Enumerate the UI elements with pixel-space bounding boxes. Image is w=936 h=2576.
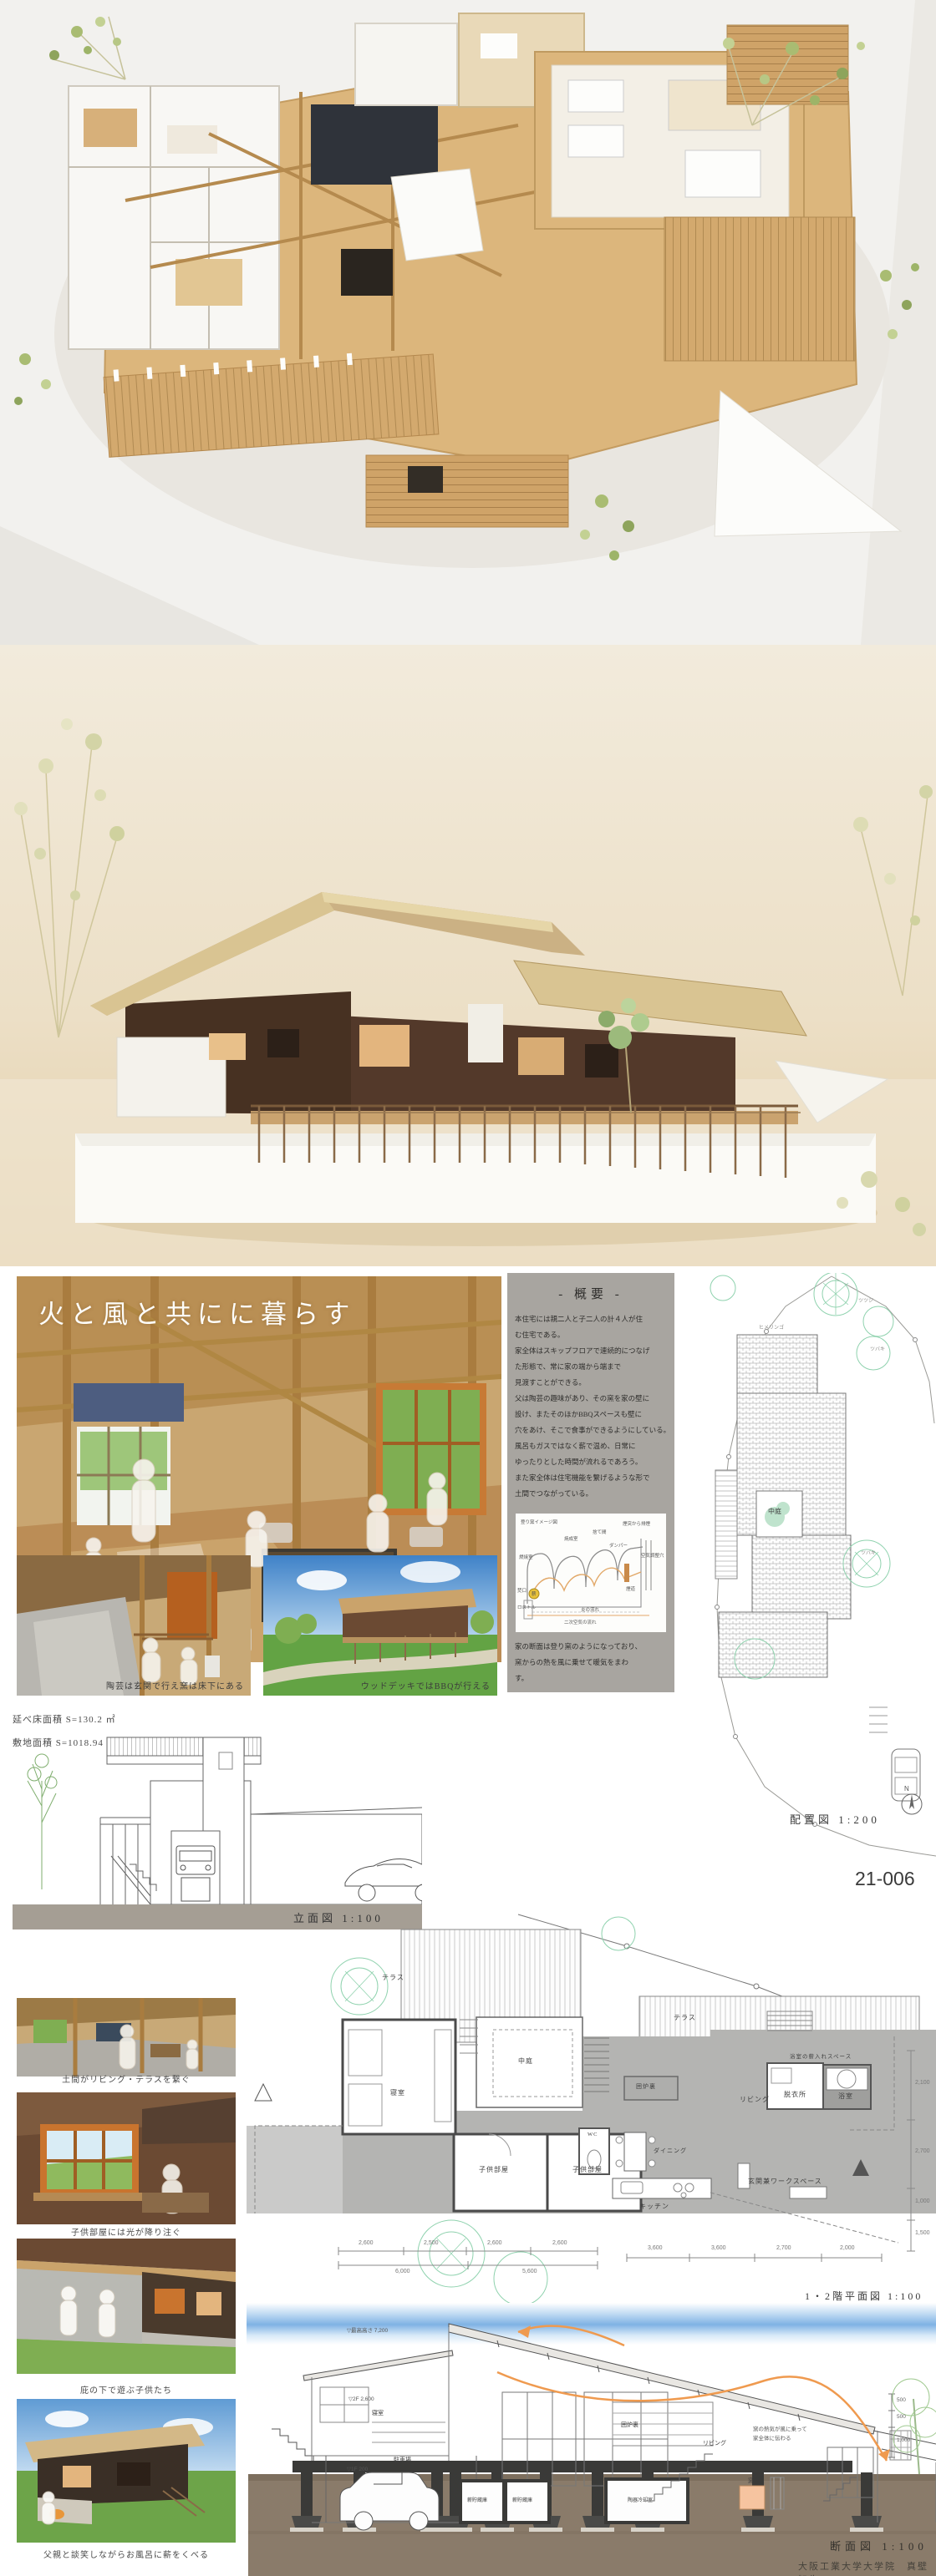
kiln-diagram: 登り窯イメージ図 燃焼室 焼成室 捨て間 ダンパー 煙突から排煙 空気調整穴 煙…: [516, 1514, 666, 1632]
kids-room-art: [17, 2092, 236, 2224]
photo-pottery-entrance: 陶芸は玄関で行え窯は床下にある: [17, 1555, 251, 1696]
rendering-eaves-play: [17, 2239, 236, 2374]
section-drawing: 寝室 駐車場 薪貯蔵庫 薪貯蔵庫 陶器冷却室 囲炉裏 リビング 窯 窯の熱気が風…: [247, 2322, 936, 2576]
overview-heading: - 概要 -: [507, 1285, 674, 1302]
kiln-diagram-title: 登り窯イメージ図: [521, 1519, 557, 1525]
plant-label: ツバキ: [870, 1345, 885, 1352]
overview-text: 本住宅には親二人と子二人の計４人が住 む住宅である。 家全体はスキップフロアで連…: [515, 1311, 674, 1502]
page-title: 火と風と共にに暮らす: [38, 1293, 355, 1331]
plant-label: ヒメリンゴ: [759, 1323, 784, 1331]
model-top-art: [0, 0, 936, 645]
section-label-garage: 駐車場: [394, 2456, 411, 2464]
overview-closing-text: 家の断面は登り窯のようになっており、 窯からの熱を風に乗せて暖気をまわ す。: [515, 1639, 674, 1686]
caption-deck-bbq: ウッドデッキではBBQが行える: [361, 1679, 491, 1691]
room-label-kids1: 子供部屋: [479, 2165, 509, 2174]
caption-doma: 土間がリビング・テラスを繋ぐ: [17, 2072, 236, 2085]
caption-bath-firewood: 父親と談笑しながらお風呂に薪をくべる: [17, 2548, 236, 2560]
room-label-terrace: テラス: [382, 1973, 404, 1982]
room-label-courtyard: 中庭: [518, 2056, 533, 2066]
floor-plan-art: [247, 1913, 936, 2305]
site-plan-label: 配置図 1:200: [790, 1811, 880, 1827]
elevation-drawing: 立面図 1:100: [13, 1731, 422, 1929]
section-label-irori: 囲炉裏: [621, 2421, 638, 2429]
room-label-bedroom: 寝室: [390, 2088, 405, 2097]
deck-bbq-art: [263, 1555, 497, 1696]
rendering-kids-room: [17, 2092, 236, 2224]
courtyard-label: 中庭: [768, 1507, 781, 1516]
section-note-line2: 家全体に伝わる: [753, 2433, 791, 2442]
floor-area-note: 延べ床面積 S=130.2 ㎡: [13, 1712, 116, 1726]
bath-firewood-art: [17, 2399, 236, 2543]
room-label-firewood-space: 浴室の薪入れスペース: [790, 2051, 852, 2060]
floor-plan-label: 1・2階平面図 1:100: [805, 2289, 923, 2303]
plant-label: ツツジ: [858, 1296, 873, 1304]
room-label-wc: WC: [588, 2132, 598, 2137]
model-photo-top-view: [0, 0, 936, 645]
section-label-living: リビング: [703, 2439, 726, 2447]
room-label-kids2: 子供部屋: [572, 2165, 603, 2174]
section-label-bedroom: 寝室: [372, 2409, 384, 2417]
presentation-board: 火と風と共にに暮らす 陶芸は玄関で行え窯は床下にある: [0, 1266, 936, 2576]
room-label-kitchen: キッチン: [639, 2202, 669, 2211]
plant-label: ツバキ: [861, 1549, 876, 1556]
section-label-woodstore2: 薪貯蔵庫: [512, 2496, 532, 2503]
section-label: 断面図 1:100: [830, 2538, 928, 2553]
pottery-photo-art: [17, 1555, 251, 1696]
caption-pottery: 陶芸は玄関で行え窯は床下にある: [106, 1679, 244, 1691]
north-label: N: [904, 1785, 909, 1793]
rendering-deck-bbq: ウッドデッキではBBQが行える: [263, 1555, 497, 1696]
caption-eaves-play: 庇の下で遊ぶ子供たち: [17, 2383, 236, 2396]
rendering-doma: [17, 1998, 236, 2077]
doma-art: [17, 1998, 236, 2077]
elevation-art: [13, 1731, 422, 1929]
room-label-irori: 囲炉裏: [636, 2082, 656, 2091]
model-exterior-art: [0, 645, 936, 1266]
caption-kids-light: 子供部屋には光が降り注ぐ: [17, 2225, 236, 2238]
room-label-dining: ダイニング: [654, 2147, 687, 2155]
site-plan-art: [681, 1273, 936, 1933]
section-note-line1: 窯の熱気が風に乗って: [753, 2424, 807, 2432]
rendering-bath-firewood: [17, 2399, 236, 2543]
presentation-sheet: 火と風と共にに暮らす 陶芸は玄関で行え窯は床下にある: [0, 0, 936, 2576]
room-label-bath: 浴室: [838, 2092, 853, 2101]
section-label-woodstore1: 薪貯蔵庫: [467, 2496, 487, 2503]
section-label-cooling-room: 陶器冷却室: [628, 2496, 653, 2503]
room-label-dressing: 脱衣所: [784, 2090, 806, 2099]
kiln-diagram-art: [516, 1514, 666, 1632]
credit-line: 大阪工業大学大学院 真壁智生: [798, 2559, 936, 2576]
level-2f: ▽2F 2,600: [348, 2396, 374, 2402]
level-top: ▽最高高さ 7,200: [347, 2325, 388, 2334]
room-label-terrace2: テラス: [674, 2013, 696, 2022]
room-label-entrance-work: 玄関兼ワークスペース: [748, 2177, 822, 2186]
overview-panel: - 概要 - 本住宅には親二人と子二人の計４人が住 む住宅である。 家全体はスキ…: [507, 1273, 674, 1692]
site-plan: ヒメリンゴ ツツジ ツバキ ツバキ 中庭 N 配置図 1:200 21-006: [681, 1273, 936, 1933]
sheet-number: 21-006: [855, 1868, 915, 1890]
room-label-living: リビング: [740, 2095, 770, 2104]
section-label-kiln: 窯: [748, 2477, 754, 2485]
floor-plan: テラス 中庭 寝室 囲炉裏 テラス リビング 脱衣所 浴室 浴室の薪入れスペース…: [247, 1913, 936, 2305]
eaves-play-art: [17, 2239, 236, 2374]
model-photo-exterior: [0, 645, 936, 1266]
level-1f: ▽1F 200: [347, 2466, 368, 2472]
